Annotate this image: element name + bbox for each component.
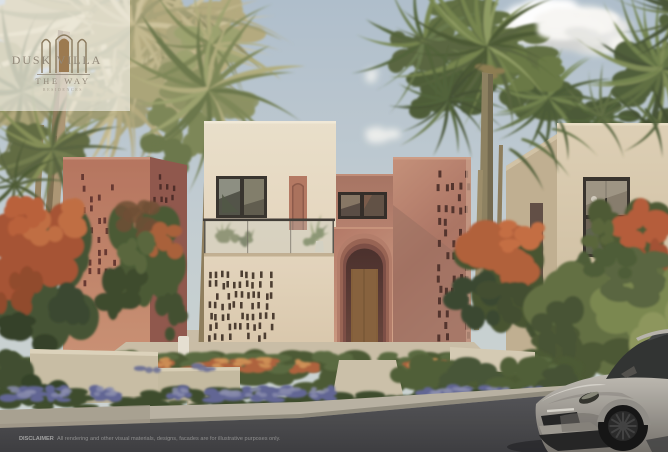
svg-text:All rendering and other visual: All rendering and other visual materials… [57, 436, 281, 442]
svg-text:DISCLAIMER: DISCLAIMER [19, 436, 54, 442]
svg-text:DUSK VILLA: DUSK VILLA [12, 53, 102, 67]
svg-text:THE WAY: THE WAY [35, 76, 90, 86]
svg-text:RESIDENCES: RESIDENCES [43, 87, 83, 92]
